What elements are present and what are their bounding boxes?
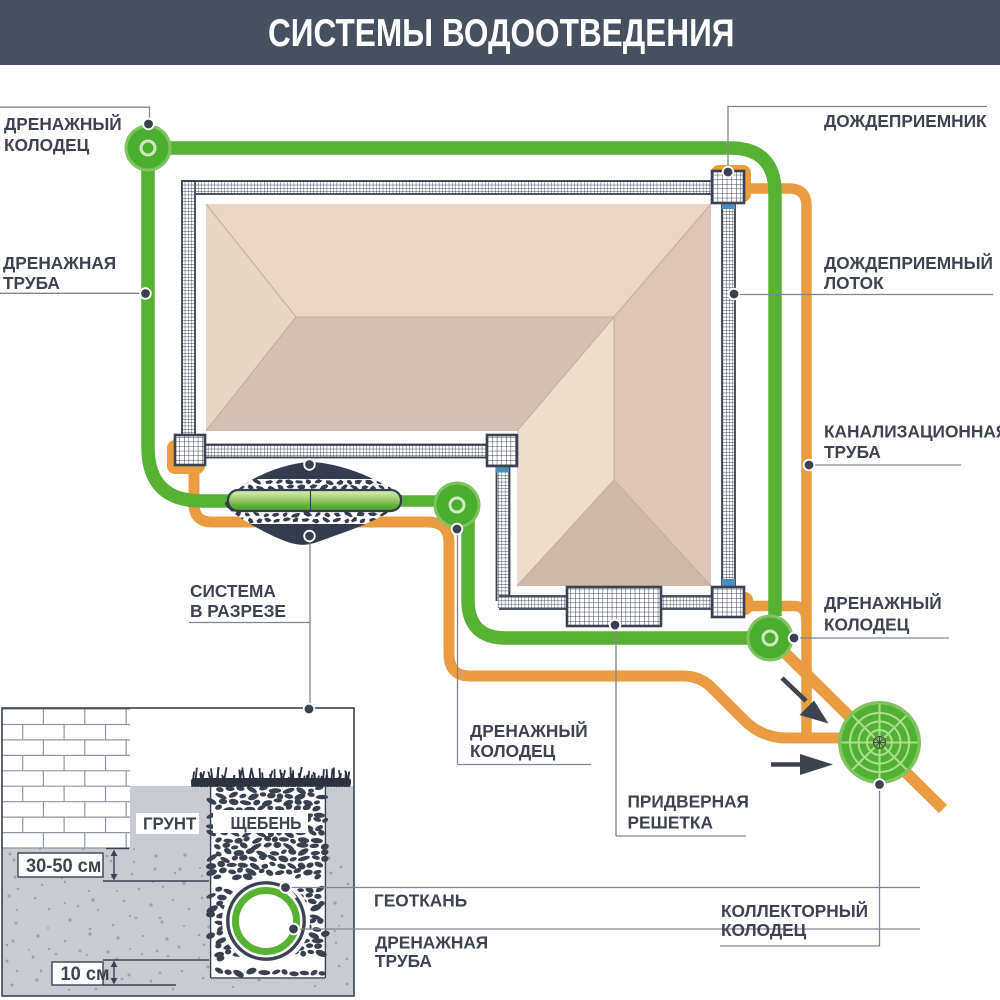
svg-text:СИСТЕМА: СИСТЕМА <box>190 581 276 601</box>
svg-text:ДРЕНАЖНАЯ: ДРЕНАЖНАЯ <box>375 932 488 952</box>
svg-text:КОЛОДЕЦ: КОЛОДЕЦ <box>721 920 806 940</box>
svg-text:КОЛОДЕЦ: КОЛОДЕЦ <box>4 135 89 155</box>
svg-text:ДРЕНАЖНЫЙ: ДРЕНАЖНЫЙ <box>824 592 942 613</box>
svg-text:30-50 см: 30-50 см <box>26 854 101 875</box>
svg-text:ЛОТОК: ЛОТОК <box>824 273 884 293</box>
svg-text:ТРУБА: ТРУБА <box>3 272 60 292</box>
svg-text:ДРЕНАЖНЫЙ: ДРЕНАЖНЫЙ <box>4 113 122 134</box>
svg-text:ДРЕНАЖНАЯ: ДРЕНАЖНАЯ <box>3 252 116 272</box>
svg-text:ЩЕБЕНЬ: ЩЕБЕНЬ <box>231 813 302 833</box>
svg-text:ДОЖДЕПРИЕМНИК: ДОЖДЕПРИЕМНИК <box>824 111 987 131</box>
svg-text:ТРУБА: ТРУБА <box>375 951 432 971</box>
svg-text:ТРУБА: ТРУБА <box>824 442 881 462</box>
svg-text:ДОЖДЕПРИЕМНЫЙ: ДОЖДЕПРИЕМНЫЙ <box>824 252 993 273</box>
svg-text:КОЛОДЕЦ: КОЛОДЕЦ <box>824 614 909 634</box>
svg-text:КОЛЛЕКТОРНЫЙ: КОЛЛЕКТОРНЫЙ <box>721 900 868 921</box>
svg-text:РЕШЕТКА: РЕШЕТКА <box>628 812 714 832</box>
svg-text:ПРИДВЕРНАЯ: ПРИДВЕРНАЯ <box>628 791 749 811</box>
svg-text:10 см: 10 см <box>61 962 110 983</box>
svg-text:В РАЗРЕЗЕ: В РАЗРЕЗЕ <box>190 601 286 621</box>
svg-text:КАНАЛИЗАЦИОННАЯ: КАНАЛИЗАЦИОННАЯ <box>824 421 1000 441</box>
svg-text:СИСТЕМЫ ВОДООТВЕДЕНИЯ: СИСТЕМЫ ВОДООТВЕДЕНИЯ <box>268 11 734 55</box>
svg-text:ГЕОТКАНЬ: ГЕОТКАНЬ <box>374 890 467 910</box>
svg-text:ГРУНТ: ГРУНТ <box>143 813 197 833</box>
svg-text:КОЛОДЕЦ: КОЛОДЕЦ <box>470 741 555 761</box>
svg-text:ДРЕНАЖНЫЙ: ДРЕНАЖНЫЙ <box>470 720 588 741</box>
